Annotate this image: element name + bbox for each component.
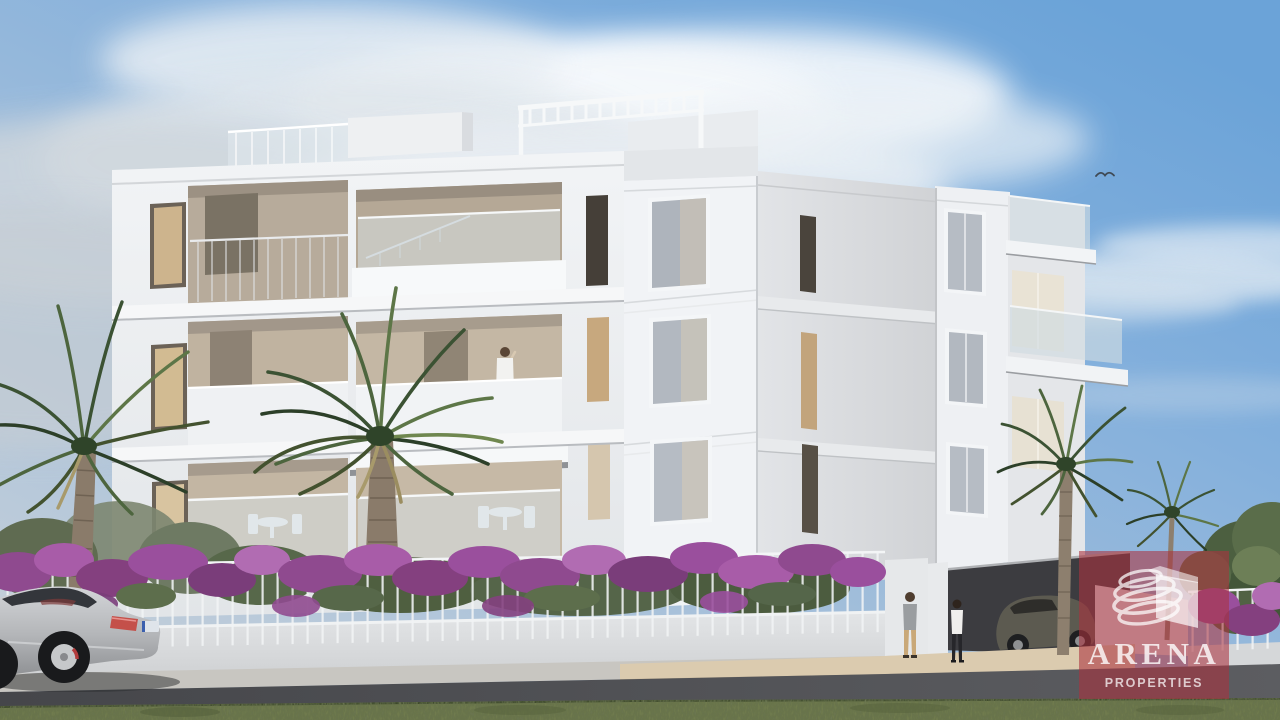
property-render-image: ARENA PROPERTIES — [0, 0, 1280, 720]
watermark-brand: ARENA — [1088, 636, 1221, 671]
facade-window-column — [150, 202, 188, 561]
corner-windows — [648, 194, 712, 526]
tower-windows — [944, 208, 988, 518]
facade-right — [758, 171, 1010, 602]
pier-slot-windows — [586, 195, 610, 520]
render-scene: ARENA PROPERTIES — [0, 0, 1280, 720]
watermark: ARENA PROPERTIES — [1079, 551, 1229, 699]
balcony-bay-left — [188, 180, 348, 568]
watermark-tagline: PROPERTIES — [1105, 676, 1204, 690]
corner-block — [624, 146, 758, 608]
